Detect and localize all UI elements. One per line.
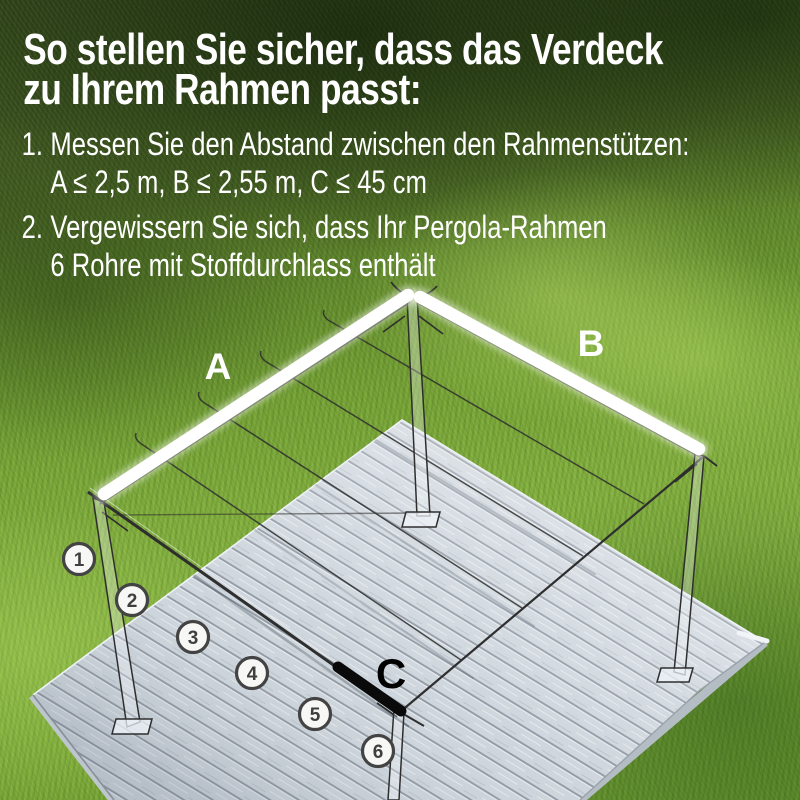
headline-line-2: zu Ihrem Rahmen passt:: [23, 70, 800, 110]
post-back-base: [402, 512, 440, 527]
step-2-marker: 2.: [22, 208, 51, 284]
tube-hook-4: [261, 351, 266, 361]
label-spacing-c: C: [376, 650, 406, 697]
instructions: So stellen Sie sicher, dass das Verdeck …: [0, 0, 800, 291]
tube-marker-2: 2: [117, 585, 148, 616]
tube-hook-5: [324, 310, 329, 320]
step-2-line-1: Vergewissern Sie sich, dass Ihr Pergola-…: [50, 208, 606, 246]
svg-text:2: 2: [127, 591, 138, 612]
label-beam-a: A: [205, 346, 232, 387]
tube-hook-3: [199, 392, 204, 402]
svg-text:3: 3: [188, 628, 199, 649]
post-right-base: [657, 668, 693, 682]
tube-marker-3: 3: [178, 622, 209, 653]
step-2-line-2: 6 Rohre mit Stoffdurchlass enthält: [50, 246, 606, 284]
instruction-step-2: 2. Vergewissern Sie sich, dass Ihr Pergo…: [22, 208, 800, 284]
beam-b-highlight: [420, 297, 699, 449]
step-1-line-1: Messen Sie den Abstand zwischen den Rahm…: [50, 125, 689, 163]
headline: So stellen Sie sicher, dass das Verdeck …: [23, 30, 800, 110]
rail-end-right: [704, 456, 717, 466]
step-1-line-2: A ≤ 2,5 m, B ≤ 2,55 m, C ≤ 45 cm: [50, 163, 689, 201]
instruction-step-1: 1. Messen Sie den Abstand zwischen den R…: [22, 125, 800, 201]
tube-marker-6: 6: [363, 736, 394, 767]
svg-text:6: 6: [373, 742, 384, 763]
step-1-text: Messen Sie den Abstand zwischen den Rahm…: [50, 125, 689, 201]
svg-text:1: 1: [74, 550, 85, 571]
tube-marker-4: 4: [237, 658, 268, 689]
label-beam-b: B: [578, 323, 605, 364]
tube-marker-5: 5: [300, 699, 331, 730]
step-2-text: Vergewissern Sie sich, dass Ihr Pergola-…: [50, 208, 606, 284]
post-left-base: [112, 719, 152, 734]
headline-line-1: So stellen Sie sicher, dass das Verdeck: [23, 30, 800, 70]
tube-hook-2: [136, 433, 141, 443]
svg-text:5: 5: [310, 705, 321, 726]
tube-marker-1: 1: [64, 544, 95, 575]
instruction-steps: 1. Messen Sie den Abstand zwischen den R…: [22, 125, 800, 284]
product-instruction-image: A B C 1 2 3 4 5: [0, 0, 800, 800]
step-1-marker: 1.: [22, 125, 51, 201]
svg-text:4: 4: [247, 664, 258, 685]
